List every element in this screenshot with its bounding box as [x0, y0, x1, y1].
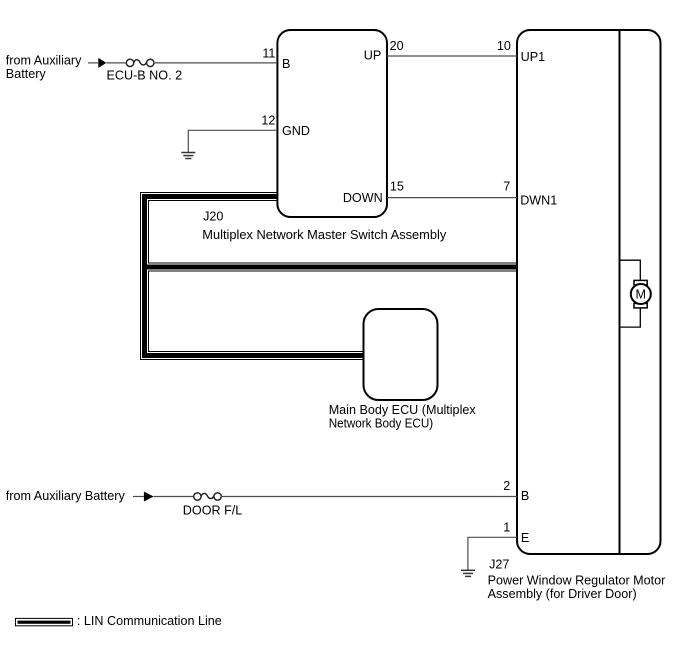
svg-text:E: E	[521, 531, 529, 545]
svg-text:Power Window Regulator Motor: Power Window Regulator Motor	[488, 574, 666, 588]
svg-text:M: M	[636, 288, 647, 302]
svg-text:1: 1	[503, 520, 510, 534]
svg-text:GND: GND	[282, 124, 310, 138]
svg-text:Main Body ECU (Multiplex: Main Body ECU (Multiplex	[329, 403, 477, 417]
svg-text:B: B	[282, 57, 290, 71]
svg-text:15: 15	[390, 179, 404, 193]
svg-text:UP: UP	[364, 48, 382, 62]
svg-text:12: 12	[261, 113, 275, 127]
svg-text:Network Body ECU): Network Body ECU)	[329, 417, 434, 431]
svg-text:Assembly (for Driver Door): Assembly (for Driver Door)	[488, 587, 637, 601]
svg-text:DWN1: DWN1	[520, 193, 557, 207]
svg-text:10: 10	[497, 39, 511, 53]
svg-text:J27: J27	[489, 558, 509, 572]
svg-text:: LIN Communication Line: : LIN Communication Line	[77, 614, 222, 628]
svg-text:11: 11	[262, 47, 275, 61]
svg-text:20: 20	[390, 39, 404, 53]
svg-text:Multiplex Network Master Switc: Multiplex Network Master Switch Assembly	[202, 228, 447, 242]
svg-text:Battery: Battery	[6, 67, 47, 81]
svg-text:UP1: UP1	[521, 50, 546, 64]
svg-text:from Auxiliary Battery: from Auxiliary Battery	[6, 489, 126, 503]
svg-text:ECU-B NO. 2: ECU-B NO. 2	[107, 69, 183, 83]
svg-text:2: 2	[503, 479, 510, 493]
svg-text:7: 7	[503, 179, 510, 193]
svg-text:B: B	[521, 489, 529, 503]
svg-text:DOWN: DOWN	[343, 191, 383, 205]
svg-text:from Auxiliary: from Auxiliary	[6, 54, 82, 68]
svg-text:J20: J20	[203, 210, 223, 224]
svg-text:DOOR F/L: DOOR F/L	[183, 504, 242, 518]
